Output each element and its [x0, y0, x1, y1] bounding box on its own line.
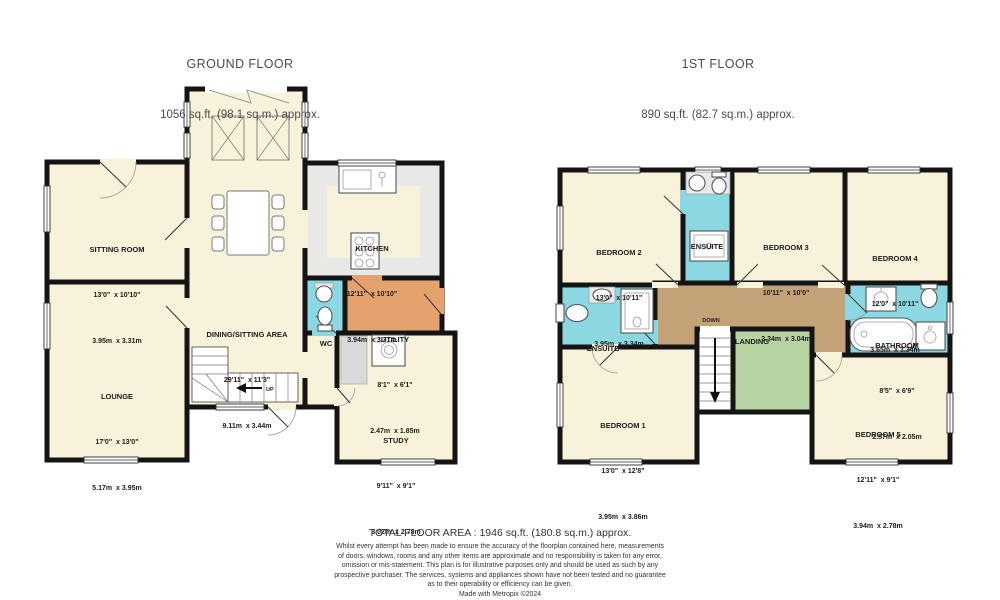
- room-dims-imperial: 13'0" x 10'11": [594, 294, 643, 304]
- disclaimer: Whilst every attempt has been made to en…: [0, 542, 1000, 600]
- room-name: BATHROOM: [872, 341, 921, 351]
- room-label-ensuite-top: ENSUITE: [691, 206, 724, 270]
- room-name: LANDING: [735, 337, 769, 347]
- room-name: STUDY: [371, 436, 420, 446]
- room-label-sitting-room: SITTING ROOM 13'0" x 10'10" 3.95m x 3.31…: [90, 209, 145, 365]
- first-floor-title: 1ST FLOOR: [568, 57, 868, 72]
- room-name: KITCHEN: [347, 244, 397, 254]
- sink-icon: [315, 283, 333, 302]
- room-name: BEDROOM 3: [761, 243, 810, 253]
- toilet-icon: [556, 304, 588, 322]
- room-dims-metric: 5.17m x 3.95m: [92, 484, 141, 494]
- room-dims-metric: 9.11m x 3.44m: [207, 422, 288, 432]
- room-name: BEDROOM 4: [870, 254, 919, 264]
- disclaimer-line: Whilst every attempt has been made to en…: [0, 542, 1000, 552]
- room-name: LOUNGE: [92, 392, 141, 402]
- room-name: UTILITY: [370, 335, 419, 345]
- room-name: DINING/SITTING AREA: [207, 330, 288, 340]
- room-label-bedroom1: BEDROOM 1 13'0" x 12'8" 3.95m x 3.86m: [598, 385, 647, 541]
- window-icon: [338, 160, 396, 166]
- stairs-down: [697, 326, 733, 412]
- window-icon: [947, 302, 953, 334]
- room-label-lounge: LOUNGE 17'0" x 13'0" 5.17m x 3.95m: [92, 356, 141, 512]
- disclaimer-line: of doors, windows, rooms and any other i…: [0, 552, 1000, 562]
- room-label-ensuite-left: ENSUITE: [587, 308, 620, 372]
- room-name: SITTING ROOM: [90, 245, 145, 255]
- room-dims-imperial: 10'11" x 10'0": [761, 289, 810, 299]
- ground-floor-header: GROUND FLOOR 1056 sq.ft. (98.1 sq.m.) ap…: [90, 21, 390, 140]
- stairs-down-label: DOWN: [702, 318, 719, 324]
- room-name: BEDROOM 2: [594, 248, 643, 258]
- ground-floor-area: 1056 sq.ft. (98.1 sq.m.) approx.: [90, 108, 390, 122]
- room-label-landing: LANDING: [735, 301, 769, 365]
- toilet-icon: [921, 284, 937, 308]
- room-dims-metric: 3.95m x 3.31m: [90, 337, 145, 347]
- room-name: BEDROOM 1: [598, 421, 647, 431]
- room-label-dining-sitting-area: DINING/SITTING AREA 29'11" x 11'3" 9.11m…: [207, 294, 288, 450]
- opening-dining-kitchen: [302, 210, 308, 248]
- room-dims-imperial: 8'1" x 6'1": [370, 381, 419, 391]
- room-dims-metric: 3.95m x 3.86m: [598, 513, 647, 523]
- room-label-wc: WC: [320, 303, 333, 367]
- window-icon: [44, 186, 50, 232]
- opening-dining-hall: [302, 352, 308, 378]
- window-icon: [947, 393, 953, 433]
- room-dims-imperial: 13'0" x 10'10": [90, 291, 145, 301]
- window-icon: [868, 167, 920, 173]
- ground-floor-title: GROUND FLOOR: [90, 57, 390, 72]
- window-icon: [44, 303, 50, 349]
- window-icon: [557, 383, 563, 427]
- room-name: BEDROOM 5: [853, 430, 902, 440]
- room-dims-imperial: 12'11" x 9'1": [853, 476, 902, 486]
- floorplan-page: { "colors": { "room_cream": "#f7f2d9", "…: [0, 0, 1000, 590]
- disclaimer-line: omission or mis-statement. This plan is …: [0, 561, 1000, 571]
- credit-line: Made with Metropix ©2024: [0, 590, 1000, 600]
- toilet-icon: [712, 172, 726, 194]
- total-floor-area: TOTAL FLOOR AREA : 1946 sq.ft. (180.8 sq…: [0, 527, 1000, 540]
- dining-table-icon: [212, 191, 284, 255]
- window-icon: [758, 167, 810, 173]
- kitchen-sink-icon: [339, 166, 396, 193]
- room-dims-imperial: 9'11" x 9'1": [371, 482, 420, 492]
- room-name: ENSUITE: [587, 344, 620, 354]
- window-icon: [588, 167, 640, 173]
- first-floor-area: 890 sq.ft. (82.7 sq.m.) approx.: [568, 108, 868, 122]
- room-name: ENSUITE: [691, 242, 724, 252]
- room-dims-imperial: 17'0" x 13'0": [92, 438, 141, 448]
- disclaimer-line: as to their operability or efficiency ca…: [0, 580, 1000, 590]
- room-dims-imperial: 29'11" x 11'3": [207, 376, 288, 386]
- room-name: WC: [320, 339, 333, 349]
- window-icon: [557, 206, 563, 250]
- disclaimer-line: prospective purchaser. The services, sys…: [0, 571, 1000, 581]
- room-dims-imperial: 13'0" x 12'8": [598, 467, 647, 477]
- first-floor-header: 1ST FLOOR 890 sq.ft. (82.7 sq.m.) approx…: [568, 21, 868, 140]
